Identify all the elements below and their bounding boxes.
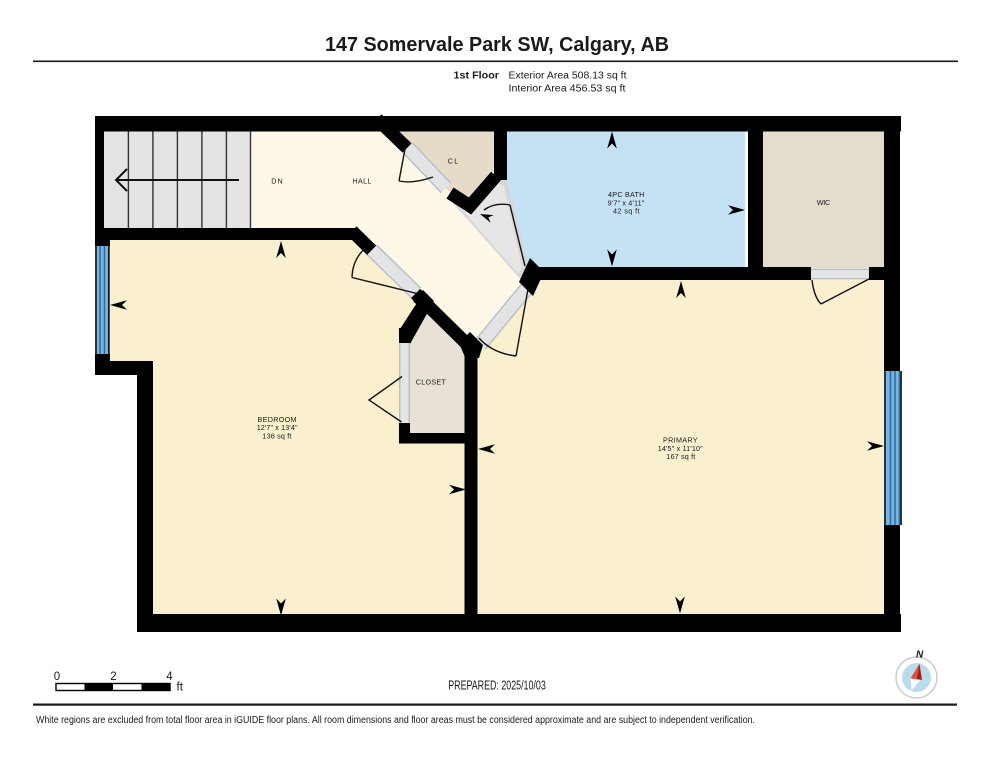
svg-text:Exterior Area 508.13 sq ft: Exterior Area 508.13 sq ft [509,70,627,81]
svg-text:4: 4 [166,671,173,683]
svg-text:Interior Area 456.53 sq ft: Interior Area 456.53 sq ft [509,84,626,95]
svg-text:2: 2 [110,671,116,683]
svg-text:CLOSET: CLOSET [416,378,447,387]
svg-text:147 Somervale Park SW, Calgary: 147 Somervale Park SW, Calgary, AB [325,34,669,56]
svg-text:42 sq ft: 42 sq ft [613,207,640,216]
svg-text:ft: ft [177,682,184,694]
svg-text:PREPARED: 2025/10/03: PREPARED: 2025/10/03 [448,677,546,692]
svg-text:136 sq ft: 136 sq ft [262,431,291,440]
svg-text:0: 0 [54,671,60,683]
svg-text:167 sq ft: 167 sq ft [666,452,695,461]
svg-text:WIC: WIC [817,198,831,207]
svg-text:HALL: HALL [353,177,372,186]
svg-text:White regions are excluded fro: White regions are excluded from total fl… [36,715,755,726]
svg-text:1st Floor: 1st Floor [454,70,500,81]
svg-text:N: N [916,650,924,661]
svg-text:DN: DN [271,177,283,186]
